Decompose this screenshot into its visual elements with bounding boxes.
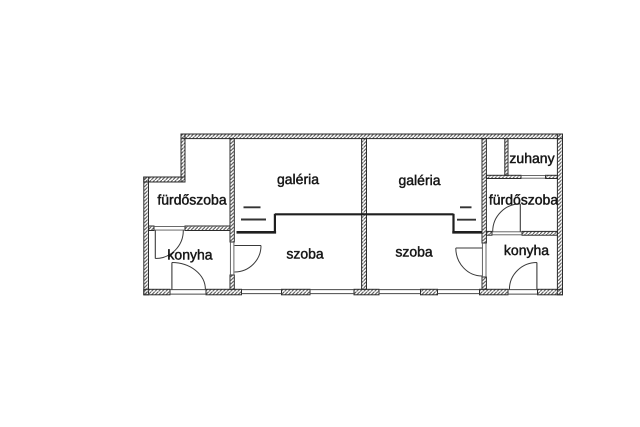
svg-text:galéria: galéria — [398, 172, 440, 188]
svg-text:szoba: szoba — [286, 245, 324, 261]
svg-text:fürdőszoba: fürdőszoba — [157, 192, 226, 208]
svg-text:zuhany: zuhany — [509, 150, 554, 166]
svg-text:galéria: galéria — [277, 171, 319, 187]
svg-text:konyha: konyha — [167, 247, 212, 263]
svg-text:fürdőszoba: fürdőszoba — [489, 192, 558, 208]
svg-text:szoba: szoba — [395, 243, 433, 259]
svg-text:konyha: konyha — [504, 242, 549, 258]
